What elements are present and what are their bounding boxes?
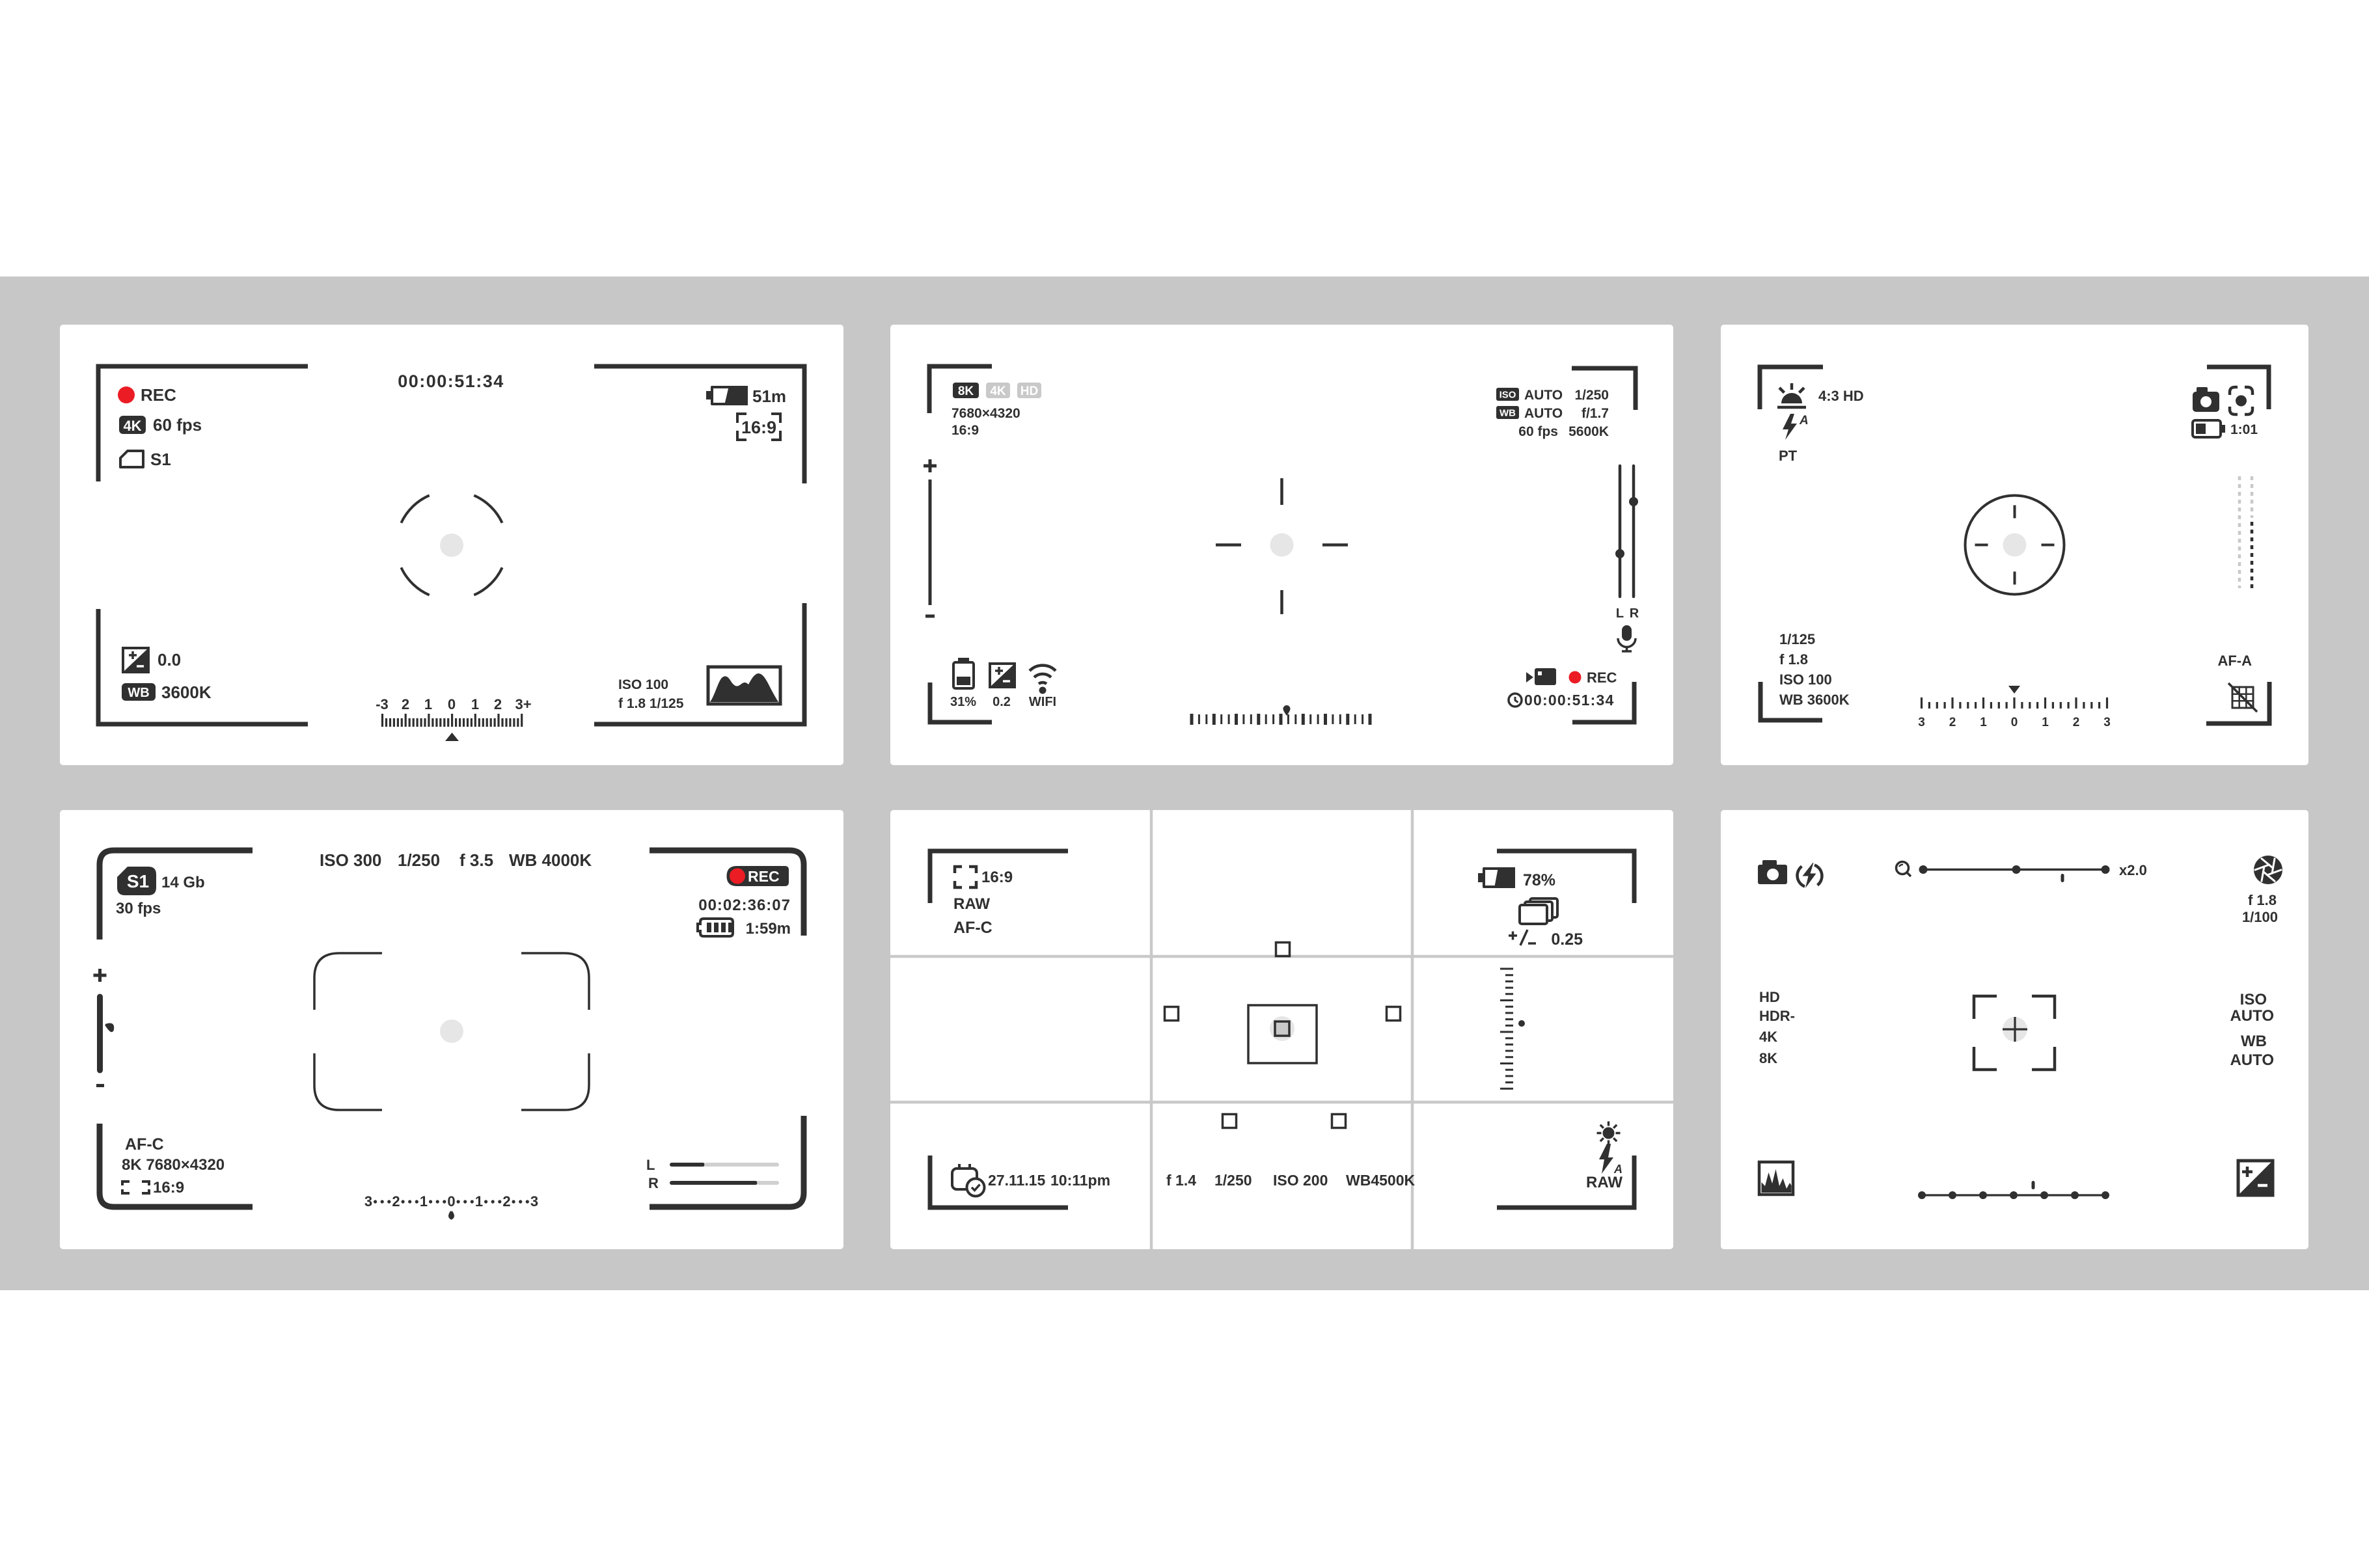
svg-text:R: R: [648, 1175, 659, 1191]
svg-text:ISO: ISO: [1499, 390, 1516, 401]
svg-text:HD: HD: [1759, 989, 1780, 1005]
svg-text:3+: 3+: [515, 696, 531, 712]
svg-text:5600K: 5600K: [1568, 424, 1609, 439]
svg-text:60 fps: 60 fps: [1518, 424, 1558, 439]
svg-text:ISO: ISO: [2240, 991, 2267, 1008]
svg-text:WB: WB: [1499, 408, 1516, 419]
svg-text:1:01: 1:01: [2230, 422, 2258, 437]
svg-text:2: 2: [392, 1193, 400, 1210]
svg-text:1/250: 1/250: [1214, 1172, 1252, 1189]
svg-text:2: 2: [494, 696, 502, 712]
svg-text:-3: -3: [376, 696, 389, 712]
svg-text:0: 0: [447, 1193, 455, 1210]
svg-text:8K: 8K: [958, 385, 974, 398]
svg-text:0.25: 0.25: [1551, 930, 1583, 949]
svg-text:4:3 HD: 4:3 HD: [1818, 388, 1864, 404]
svg-text:4K: 4K: [1759, 1029, 1777, 1045]
svg-text:16:9: 16:9: [153, 1179, 184, 1196]
svg-text:31%: 31%: [950, 695, 976, 709]
svg-text:60 fps: 60 fps: [153, 415, 202, 435]
svg-text:3: 3: [364, 1193, 372, 1210]
svg-text:1/250: 1/250: [398, 850, 440, 870]
svg-text:51m: 51m: [752, 386, 786, 406]
svg-text:L: L: [1616, 606, 1624, 621]
svg-text:AUTO: AUTO: [2230, 1007, 2274, 1025]
svg-text:1: 1: [2042, 716, 2049, 729]
svg-text:16:9: 16:9: [952, 423, 979, 438]
svg-text:RAW: RAW: [953, 895, 990, 913]
svg-text:R: R: [2249, 595, 2259, 610]
svg-text:PT: PT: [1779, 448, 1798, 464]
svg-text:1:59m: 1:59m: [746, 920, 791, 938]
svg-text:0.2: 0.2: [993, 695, 1011, 709]
svg-text:1: 1: [420, 1193, 428, 1210]
svg-text:AF-C: AF-C: [125, 1135, 164, 1154]
svg-text:8K 7680×4320: 8K 7680×4320: [122, 1156, 225, 1174]
svg-text:27.11.15: 27.11.15: [988, 1172, 1045, 1189]
svg-text:16:9: 16:9: [981, 869, 1013, 886]
svg-text:AUTO: AUTO: [2230, 1051, 2274, 1069]
svg-text:0: 0: [448, 696, 456, 712]
svg-text:ISO 200: ISO 200: [1273, 1172, 1328, 1189]
svg-text:ISO 300: ISO 300: [320, 850, 381, 870]
svg-text:2: 2: [502, 1193, 510, 1210]
svg-text:WB 4000K: WB 4000K: [509, 850, 592, 870]
svg-text:f 1.4: f 1.4: [1166, 1172, 1196, 1189]
svg-text:WB 3600K: WB 3600K: [1779, 692, 1850, 708]
svg-text:R: R: [1630, 606, 1639, 621]
svg-text:f 1.8: f 1.8: [1779, 651, 1808, 668]
svg-text:1/100: 1/100: [2242, 909, 2278, 925]
svg-text:HD: HD: [1020, 385, 1038, 398]
svg-text:AUTO: AUTO: [1524, 406, 1563, 421]
svg-text:00:02:36:07: 00:02:36:07: [698, 897, 791, 914]
svg-text:1: 1: [475, 1193, 483, 1210]
svg-text:WB: WB: [128, 686, 149, 700]
svg-text:4K: 4K: [990, 385, 1006, 398]
svg-text:1/125: 1/125: [1779, 631, 1815, 647]
svg-text:2: 2: [1949, 716, 1956, 729]
svg-text:30 fps: 30 fps: [116, 900, 161, 917]
svg-text:78%: 78%: [1523, 871, 1555, 889]
svg-text:00:00:51:34: 00:00:51:34: [1524, 692, 1615, 709]
svg-text:f/1.7: f/1.7: [1582, 406, 1609, 421]
svg-text:ISO 100: ISO 100: [1779, 671, 1832, 688]
svg-text:1/250: 1/250: [1574, 388, 1609, 403]
svg-text:8K: 8K: [1759, 1050, 1777, 1066]
svg-text:S1: S1: [127, 871, 149, 891]
svg-text:7680×4320: 7680×4320: [952, 406, 1020, 421]
svg-text:16:9: 16:9: [741, 418, 776, 437]
svg-text:f 3.5: f 3.5: [459, 850, 493, 870]
svg-text:1: 1: [424, 696, 432, 712]
svg-text:1: 1: [471, 696, 479, 712]
svg-text:f 1.8: f 1.8: [2248, 892, 2277, 908]
svg-text:3: 3: [2103, 716, 2111, 729]
svg-text:10:11pm: 10:11pm: [1050, 1172, 1110, 1189]
svg-text:S1: S1: [150, 450, 171, 469]
svg-text:3: 3: [530, 1193, 538, 1210]
svg-text:AF-C: AF-C: [953, 919, 993, 937]
svg-text:WB: WB: [2241, 1033, 2267, 1050]
svg-text:A: A: [1799, 414, 1809, 427]
svg-text:WIFI: WIFI: [1029, 695, 1056, 709]
svg-text:WB4500K: WB4500K: [1346, 1172, 1415, 1189]
svg-text:x2.0: x2.0: [2119, 862, 2147, 878]
svg-text:4K: 4K: [123, 418, 141, 434]
svg-text:REC: REC: [748, 868, 780, 885]
svg-text:1: 1: [1980, 716, 1987, 729]
svg-text:RAW: RAW: [1586, 1174, 1623, 1191]
svg-text:2: 2: [2073, 716, 2080, 729]
svg-text:REC: REC: [141, 385, 176, 405]
svg-text:0.0: 0.0: [157, 650, 181, 669]
svg-text:ISO 100: ISO 100: [618, 677, 668, 692]
svg-text:REC: REC: [1587, 669, 1617, 686]
svg-text:HDR-: HDR-: [1759, 1008, 1795, 1024]
svg-text:14 Gb: 14 Gb: [161, 874, 205, 891]
svg-text:AUTO: AUTO: [1524, 388, 1563, 403]
svg-text:00:00:51:34: 00:00:51:34: [398, 372, 504, 391]
svg-text:AF-A: AF-A: [2217, 653, 2252, 669]
svg-text:0: 0: [2011, 716, 2018, 729]
svg-text:L: L: [2237, 595, 2245, 610]
svg-text:2: 2: [402, 696, 409, 712]
svg-text:3600K: 3600K: [161, 683, 212, 702]
svg-text:L: L: [646, 1157, 655, 1173]
svg-text:3: 3: [1918, 716, 1925, 729]
svg-text:f 1.8 1/125: f 1.8 1/125: [618, 696, 684, 711]
